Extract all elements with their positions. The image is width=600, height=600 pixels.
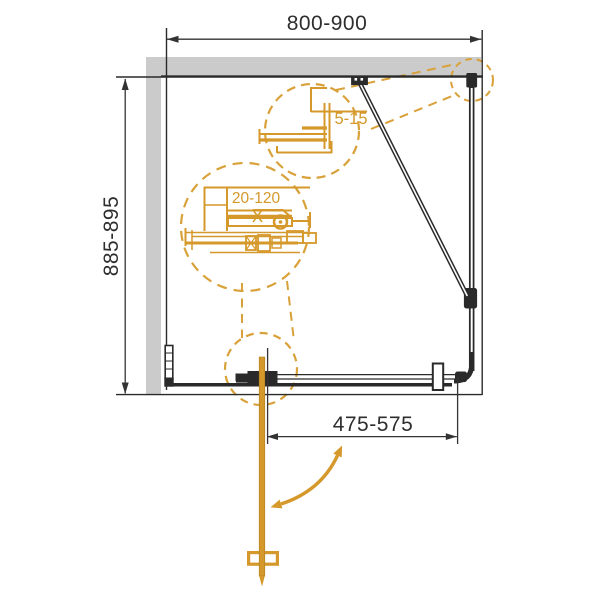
bracket-screw: [361, 78, 364, 81]
drawing-canvas: [0, 0, 600, 600]
door-panel-diagonal-core: [358, 80, 467, 297]
label-detail-20-120: 20-120: [228, 190, 284, 207]
arrow-left: [267, 433, 278, 440]
left-wall-profile: [165, 346, 173, 379]
left-wall: [146, 57, 161, 394]
arrow-down: [122, 383, 129, 395]
arrow-right: [446, 433, 457, 440]
leader-a-d-lower: [371, 94, 457, 129]
swing-arc: [281, 456, 338, 505]
gold-door-open: [249, 357, 278, 587]
swing-arrowhead-lower: [271, 500, 283, 509]
top-pivot-block: [467, 74, 477, 88]
label-side-depth: 885-895: [100, 188, 124, 284]
detail-b-roller-axle: [279, 220, 283, 224]
arrow-left: [167, 36, 179, 43]
label-detail-5-15: 5-15: [330, 110, 372, 128]
shower-enclosure-plan-drawing: 800-900 885-895 475-575 5-15 20-120: [0, 0, 600, 600]
label-door-width: 475-575: [313, 413, 433, 437]
left-wall-profile-foot: [165, 378, 173, 386]
door-pivot-block-small: [236, 374, 249, 381]
rail-bracket: [433, 364, 443, 391]
label-top-width: 800-900: [267, 12, 387, 36]
enclosure-frame: [116, 28, 483, 395]
dimension-top: [167, 36, 481, 43]
door-leaf-open: [259, 357, 265, 576]
leader-b-c-right: [287, 281, 294, 341]
swing-arrow: [271, 446, 343, 509]
top-wall: [146, 57, 481, 75]
bracket-screw: [355, 78, 358, 81]
arrow-right: [470, 36, 481, 43]
door-top-bracket: [352, 76, 368, 85]
arrow-up: [122, 79, 129, 91]
door-leaf-tip: [259, 576, 265, 587]
